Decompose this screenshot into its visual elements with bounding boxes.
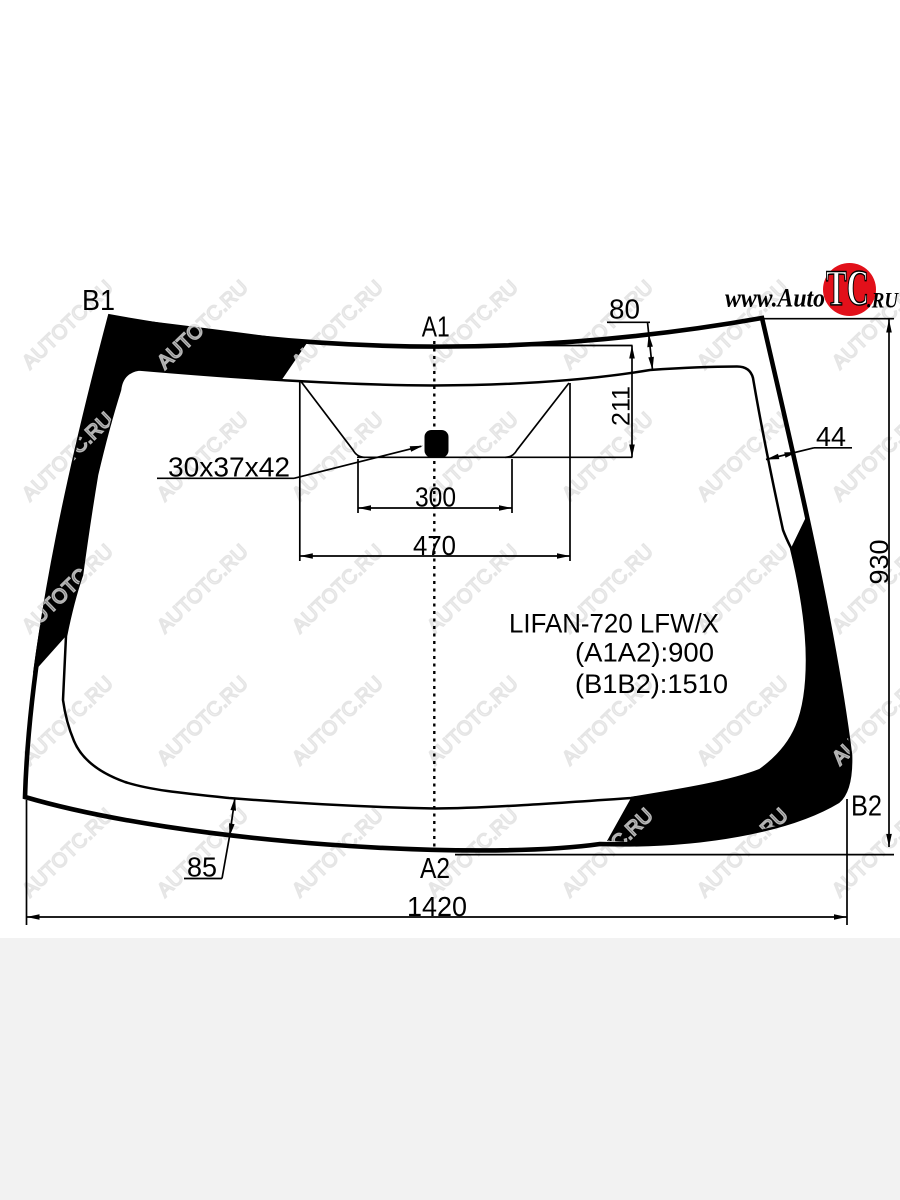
svg-text:80: 80 [609,293,640,324]
svg-text:A2: A2 [420,853,450,885]
svg-text:www.Auto: www.Auto [725,284,825,313]
svg-text:(B1B2):1510: (B1B2):1510 [575,669,728,699]
svg-text:B1: B1 [82,285,115,317]
svg-text:.RU: .RU [867,288,899,313]
svg-text:A1: A1 [422,311,450,343]
svg-text:1420: 1420 [407,891,467,922]
svg-text:B2: B2 [851,791,882,823]
svg-text:300: 300 [415,482,456,513]
svg-text:LIFAN-720 LFW/X: LIFAN-720 LFW/X [509,609,719,639]
svg-text:470: 470 [413,530,456,561]
svg-text:(A1A2):900: (A1A2):900 [575,638,714,668]
svg-text:930: 930 [864,540,894,585]
svg-text:TC: TC [826,261,869,317]
svg-text:211: 211 [608,386,636,426]
